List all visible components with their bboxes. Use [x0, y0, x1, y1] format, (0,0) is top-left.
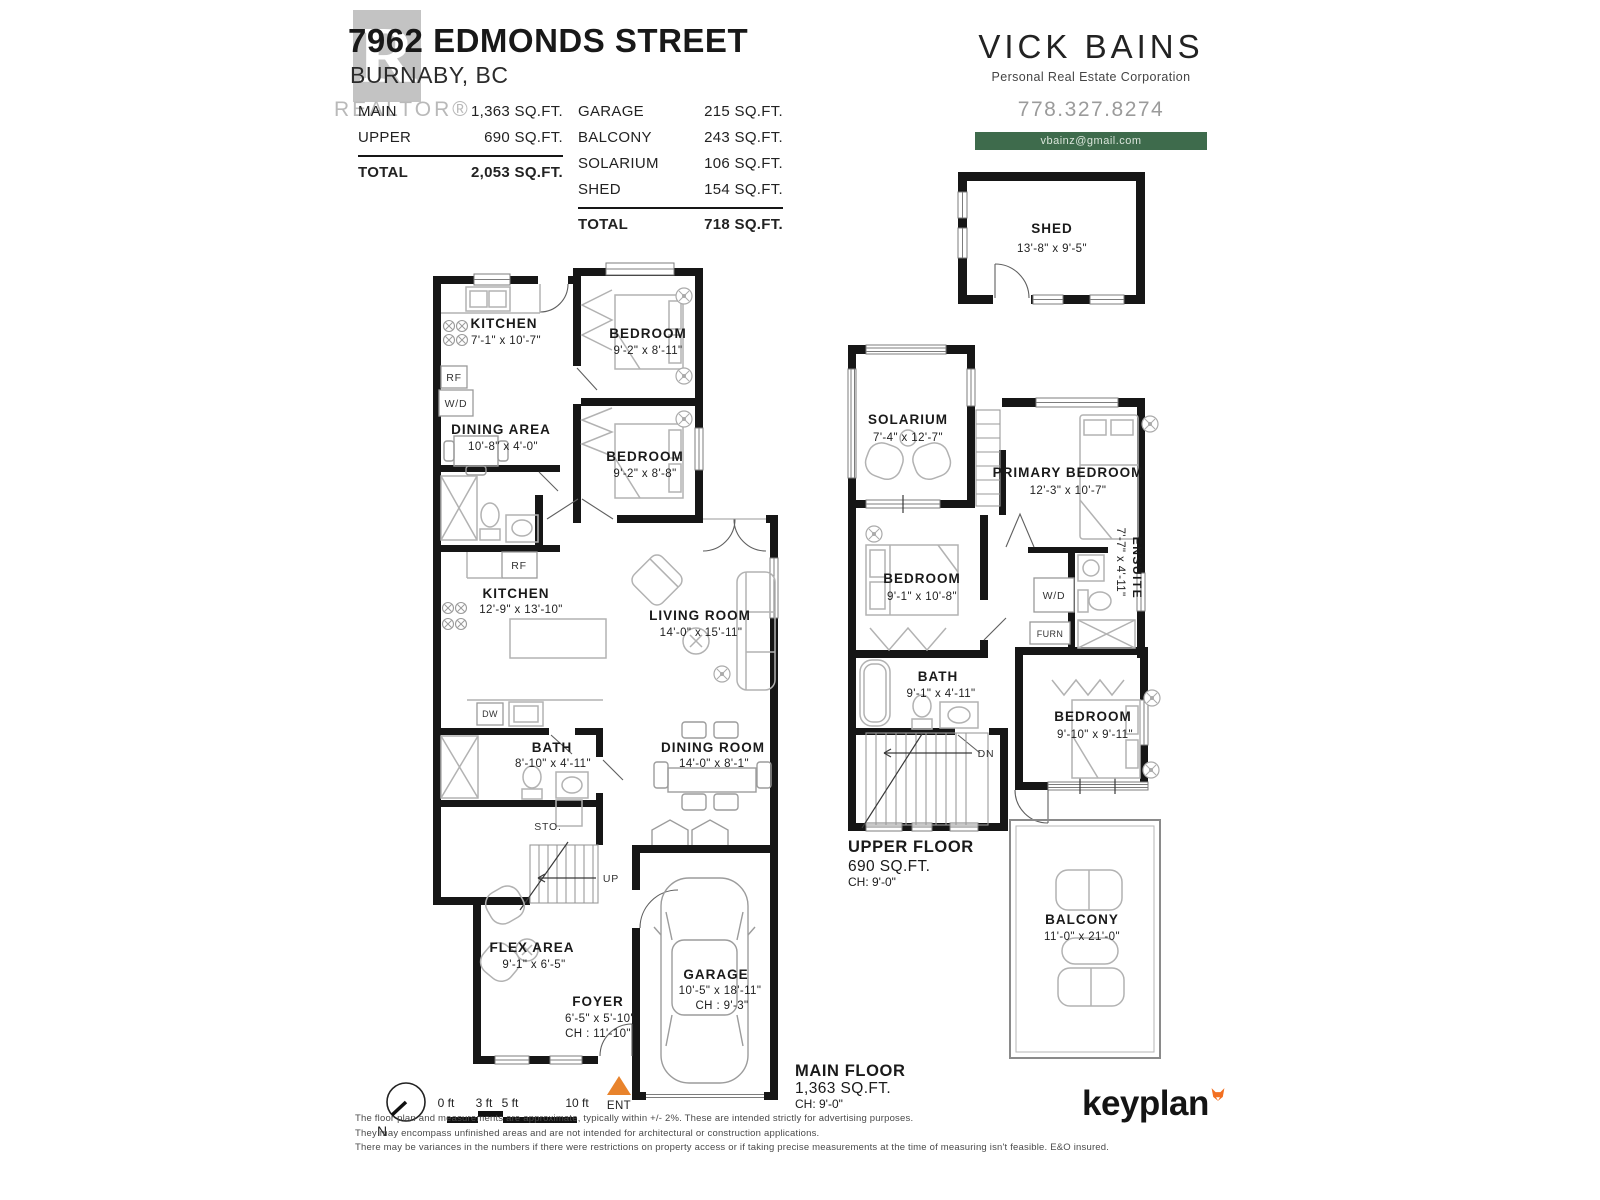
room-dims: 9'-2" x 8'-8": [613, 468, 676, 480]
room-dims: 9'-1" x 6'-5": [502, 959, 565, 971]
tag-up: UP: [603, 873, 619, 885]
tag-rf-upper: RF: [446, 372, 462, 384]
floorplan-canvas: SHED 13'-8" x 9'-5": [0, 0, 1600, 1200]
room-label: KITCHEN: [471, 316, 538, 331]
area-total-row: TOTAL 2,053 SQ.FT.: [358, 155, 563, 181]
area-value: 243 SQ.FT.: [704, 129, 783, 146]
upper-floor-plan: W/D FURN: [848, 345, 1160, 1058]
agent-phone: 778.327.8274: [951, 98, 1231, 122]
area-row: UPPER 690 SQ.FT.: [358, 129, 563, 146]
floor-ceiling: CH: 9'-0": [848, 875, 896, 889]
room-label: ENSUITE: [1130, 537, 1144, 600]
tag-wd-main: W/D: [445, 398, 468, 410]
fox-icon: [1210, 1087, 1226, 1102]
area-value: 1,363 SQ.FT.: [471, 103, 563, 120]
area-label: TOTAL: [358, 164, 408, 181]
room-label: KITCHEN: [483, 586, 550, 601]
agent-card: VICK BAINS Personal Real Estate Corporat…: [951, 28, 1231, 150]
area-label: UPPER: [358, 129, 411, 146]
scale-tick-label: 0 ft: [438, 1096, 455, 1110]
room-label: BATH: [532, 740, 573, 755]
area-value: 106 SQ.FT.: [704, 155, 783, 172]
scale-tick-label: 3 ft: [476, 1096, 493, 1110]
entry-label: ENT: [607, 1100, 631, 1112]
room-dims: 9'-1" x 10'-8": [887, 591, 957, 603]
area-row: SOLARIUM 106 SQ.FT.: [578, 155, 783, 172]
keyplan-wordmark: keyplan: [1082, 1084, 1209, 1124]
area-row: GARAGE 215 SQ.FT.: [578, 103, 783, 120]
room-dims: 14'-0" x 15'-11": [660, 627, 743, 639]
room-label: FLEX AREA: [489, 940, 574, 955]
room-label: BATH: [918, 669, 959, 684]
room-dims: 14'-0" x 8'-1": [679, 758, 749, 770]
upper-floor-labels: SOLARIUM 7'-4" x 12'-7" PRIMARY BEDROOM …: [848, 412, 1144, 943]
scale-tick-label: 5 ft: [502, 1096, 519, 1110]
area-value: 2,053 SQ.FT.: [471, 164, 563, 181]
disclaimer-line: They may encompass unfinished areas and …: [355, 1127, 1109, 1142]
floor-title: MAIN FLOOR: [795, 1062, 906, 1080]
disclaimer-line: The floor plan and measurements are appr…: [355, 1112, 1109, 1127]
area-value: 215 SQ.FT.: [704, 103, 783, 120]
room-label: SOLARIUM: [868, 412, 948, 427]
room-label: BEDROOM: [883, 571, 961, 586]
room-dims: 9'-10" x 9'-11": [1057, 729, 1133, 741]
tag-sto: STO.: [534, 821, 562, 833]
room-dims: 7'-1" x 10'-7": [471, 335, 541, 347]
shed-label: SHED: [1031, 221, 1073, 236]
room-label: PRIMARY BEDROOM: [993, 465, 1144, 480]
room-dims: 9'-2" x 8'-11": [613, 345, 682, 357]
area-label: BALCONY: [578, 129, 652, 146]
tag-rf-main: RF: [511, 560, 527, 572]
room-dims: 9'-1" x 4'-11": [906, 688, 975, 700]
room-label: BEDROOM: [609, 326, 687, 341]
area-summary-other: GARAGE 215 SQ.FT. BALCONY 243 SQ.FT. SOL…: [578, 103, 783, 233]
area-label: GARAGE: [578, 103, 644, 120]
room-label: BEDROOM: [606, 449, 684, 464]
room-label: BALCONY: [1045, 912, 1119, 927]
disclaimer-line: There may be variances in the numbers if…: [355, 1141, 1109, 1156]
room-label: DINING ROOM: [661, 740, 765, 755]
agent-email: vbainz@gmail.com: [975, 132, 1207, 150]
area-row: SHED 154 SQ.FT.: [578, 181, 783, 198]
flyer-page: R REALTOR® 7962 EDMONDS STREET BURNABY, …: [0, 0, 1600, 1200]
room-dims: 6'-5" x 5'-10": [565, 1013, 635, 1025]
room-dims: 12'-3" x 10'-7": [1030, 485, 1107, 497]
area-label: SOLARIUM: [578, 155, 659, 172]
address-line1: 7962 EDMONDS STREET: [348, 22, 748, 60]
room-label: BEDROOM: [1054, 709, 1132, 724]
room-dims: 12'-9" x 13'-10": [479, 604, 563, 616]
floor-title: UPPER FLOOR: [848, 838, 974, 856]
area-label: TOTAL: [578, 216, 628, 233]
room-label: GARAGE: [683, 967, 748, 982]
agent-name: VICK BAINS: [951, 28, 1231, 66]
disclaimer: The floor plan and measurements are appr…: [355, 1112, 1109, 1156]
area-summary-main: MAIN 1,363 SQ.FT. UPPER 690 SQ.FT. TOTAL…: [358, 103, 563, 181]
agent-subtitle: Personal Real Estate Corporation: [951, 70, 1231, 84]
main-floor-labels: KITCHEN 7'-1" x 10'-7" DINING AREA 10'-8…: [451, 316, 905, 1111]
tag-furn: FURN: [1037, 629, 1064, 639]
floor-area: 690 SQ.FT.: [848, 858, 930, 875]
area-value: 718 SQ.FT.: [704, 216, 783, 233]
room-label: LIVING ROOM: [649, 608, 751, 623]
tag-wd-upper: W/D: [1043, 590, 1066, 602]
room-dims: 10'-8" x 4'-0": [468, 441, 538, 453]
room-dims: 10'-5" x 18'-11": [679, 985, 762, 997]
area-total-row: TOTAL 718 SQ.FT.: [578, 207, 783, 233]
keyplan-logo: keyplan: [1082, 1084, 1226, 1124]
room-label: DINING AREA: [451, 422, 551, 437]
room-dims: 7'-4" x 12'-7": [873, 432, 943, 444]
area-value: 690 SQ.FT.: [484, 129, 563, 146]
area-row: BALCONY 243 SQ.FT.: [578, 129, 783, 146]
scale-tick-label: 10 ft: [565, 1096, 589, 1110]
room-label: FOYER: [572, 994, 624, 1009]
address-line2: BURNABY, BC: [350, 62, 508, 89]
floor-ceiling: CH: 9'-0": [795, 1097, 843, 1111]
room-dims: 11'-0" x 21'-0": [1044, 931, 1120, 943]
room-dims: 8'-10" x 4'-11": [515, 758, 591, 770]
tag-dn: DN: [978, 748, 995, 760]
shed-dims: 13'-8" x 9'-5": [1017, 243, 1087, 255]
room-dims: 7'-7" x 4'-11": [1114, 527, 1126, 596]
room-ch: CH : 9'-3": [695, 1000, 748, 1012]
entry-marker: ENT: [607, 1076, 631, 1112]
area-value: 154 SQ.FT.: [704, 181, 783, 198]
area-label: MAIN: [358, 103, 397, 120]
area-label: SHED: [578, 181, 621, 198]
tag-dw: DW: [482, 709, 498, 719]
room-ch: CH : 11'-10": [565, 1028, 631, 1040]
main-floor-plan: RF W/D: [433, 263, 906, 1112]
floor-area: 1,363 SQ.FT.: [795, 1080, 891, 1097]
area-row: MAIN 1,363 SQ.FT.: [358, 103, 563, 120]
shed-plan: SHED 13'-8" x 9'-5": [958, 172, 1145, 304]
